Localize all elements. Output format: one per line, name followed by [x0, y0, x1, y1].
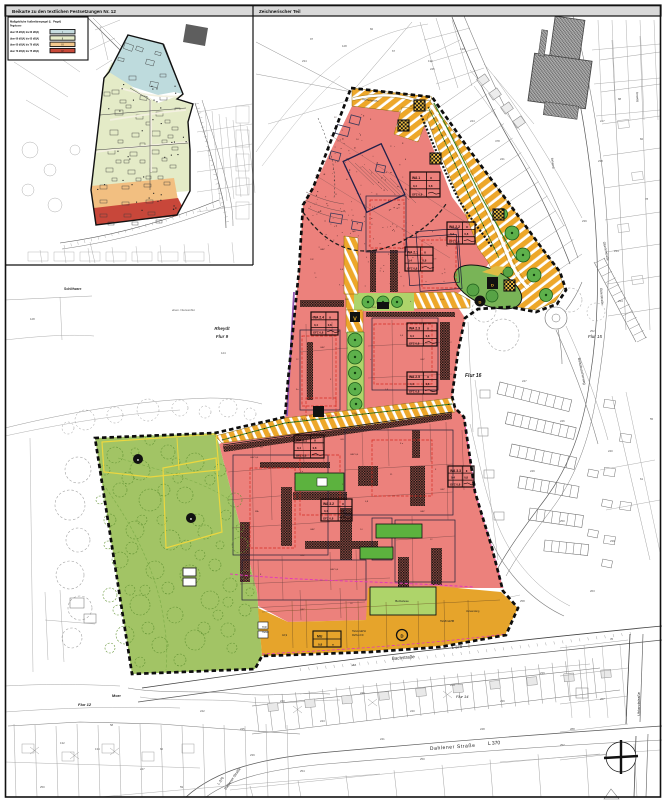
svg-text:0,4: 0,4 — [451, 476, 455, 480]
svg-text:Bolzwiese: Bolzwiese — [395, 599, 409, 603]
svg-text:245: 245 — [430, 67, 435, 71]
svg-text:257: 257 — [560, 743, 565, 747]
svg-text:GFZ 0,8: GFZ 0,8 — [323, 517, 334, 521]
svg-text:über 60 dB(A) bis 65 dB(A): über 60 dB(A) bis 65 dB(A) — [10, 37, 39, 40]
svg-text:Schilfware: Schilfware — [64, 287, 82, 291]
svg-text:WA 1: WA 1 — [412, 176, 420, 180]
svg-text:0,8: 0,8 — [464, 232, 468, 236]
svg-text:0,8: 0,8 — [464, 476, 468, 480]
svg-text:254: 254 — [300, 769, 305, 773]
svg-text:über 70 dB(A) bis 75 dB(A): über 70 dB(A) bis 75 dB(A) — [10, 50, 39, 53]
svg-text:240: 240 — [410, 709, 415, 713]
svg-text:132: 132 — [428, 59, 433, 63]
svg-text:WA 3,4: WA 3,4 — [300, 418, 308, 421]
svg-text:82: 82 — [370, 27, 374, 31]
svg-text:243: 243 — [450, 683, 455, 687]
svg-text:GRZ: GRZ — [300, 555, 305, 557]
svg-text:258: 258 — [520, 599, 525, 603]
svg-text:GRZ 0,4: GRZ 0,4 — [250, 457, 259, 459]
svg-text:II: II — [424, 251, 426, 255]
svg-text:II: II — [427, 375, 429, 379]
svg-text:GFZ 0,8: GFZ 0,8 — [412, 193, 423, 197]
svg-text:239: 239 — [250, 753, 255, 757]
svg-text:0,8: 0,8 — [328, 323, 332, 327]
svg-text:238: 238 — [598, 159, 603, 163]
svg-text:II: II — [466, 225, 468, 229]
svg-text:0,8: 0,8 — [313, 446, 317, 450]
svg-text:FEHLA FD: FEHLA FD — [352, 634, 364, 637]
svg-text:247: 247 — [600, 119, 605, 123]
svg-text:42,9: 42,9 — [282, 633, 288, 637]
svg-text:82: 82 — [640, 137, 644, 141]
svg-text:0,4: 0,4 — [410, 334, 414, 338]
svg-text:WA 2.1: WA 2.1 — [407, 251, 418, 255]
svg-text:0,8: 0,8 — [426, 334, 430, 338]
svg-text:78: 78 — [645, 197, 649, 201]
svg-text:288: 288 — [570, 727, 575, 731]
svg-text:249: 249 — [530, 469, 535, 473]
svg-text:GFZ 0,8: GFZ 0,8 — [409, 390, 420, 394]
svg-text:H,W: H,W — [262, 626, 267, 629]
svg-text:248: 248 — [480, 727, 485, 731]
svg-text:128: 128 — [30, 317, 35, 321]
svg-text:Beikarte zu den textlichen Fes: Beikarte zu den textlichen Festsetzungen… — [12, 9, 116, 14]
svg-text:134: 134 — [95, 747, 100, 751]
svg-text:über 55 dB(A) bis 60 dB(A): über 55 dB(A) bis 60 dB(A) — [10, 31, 39, 34]
svg-text:247: 247 — [522, 379, 527, 383]
svg-text:240: 240 — [608, 449, 613, 453]
svg-text:55: 55 — [650, 417, 654, 421]
svg-text:0,4: 0,4 — [324, 509, 328, 513]
svg-text:TEILB GEHB: TEILB GEHB — [440, 620, 454, 623]
svg-text:239: 239 — [610, 539, 615, 543]
svg-text:WA 2.2: WA 2.2 — [449, 225, 460, 229]
svg-text:252: 252 — [590, 329, 595, 333]
svg-text:WA: WA — [255, 510, 259, 513]
svg-text:GFZ 0,8: GFZ 0,8 — [450, 483, 461, 487]
svg-text:D: D — [400, 634, 403, 639]
svg-text:II: II — [329, 315, 331, 319]
svg-text:GFZ 0,8: GFZ 0,8 — [449, 240, 460, 244]
svg-text:GRZ: GRZ — [300, 609, 305, 611]
svg-text:II: II — [342, 502, 344, 506]
svg-text:247: 247 — [140, 767, 145, 771]
svg-text:245: 245 — [240, 727, 245, 731]
svg-text:58: 58 — [110, 723, 114, 727]
svg-text:GRZ 0,4: GRZ 0,4 — [330, 569, 339, 571]
svg-text:V: V — [353, 317, 357, 323]
svg-text:234: 234 — [614, 249, 619, 253]
svg-text:GRZ: GRZ — [420, 511, 425, 513]
svg-text:II: II — [314, 438, 316, 442]
svg-text:124: 124 — [221, 351, 226, 355]
svg-text:D: D — [491, 283, 494, 288]
svg-text:GRZ: GRZ — [320, 249, 325, 251]
svg-text:Flur 16: Flur 16 — [465, 373, 482, 379]
svg-text:97: 97 — [310, 37, 314, 41]
svg-text:243: 243 — [320, 719, 325, 723]
svg-text:WA 3.1: WA 3.1 — [296, 438, 307, 442]
svg-text:241: 241 — [380, 737, 385, 741]
svg-text:Flur 15: Flur 15 — [588, 334, 603, 339]
svg-text:478: 478 — [495, 139, 500, 143]
svg-text:GRZ: GRZ — [420, 359, 425, 361]
svg-text:59: 59 — [180, 785, 184, 789]
svg-text:WA 2.4: WA 2.4 — [313, 315, 324, 319]
svg-text:246: 246 — [360, 691, 365, 695]
svg-text:242: 242 — [200, 709, 205, 713]
svg-text:250: 250 — [560, 519, 565, 523]
svg-text:88: 88 — [618, 97, 622, 101]
svg-text:Flur 12: Flur 12 — [78, 702, 92, 707]
svg-text:GFZ 0,8: GFZ 0,8 — [407, 267, 418, 271]
svg-text:GFZ 0,8: GFZ 0,8 — [296, 454, 307, 458]
svg-text:WA 3.2: WA 3.2 — [323, 502, 334, 506]
svg-text:0,8: 0,8 — [426, 382, 430, 386]
svg-text:ata: ata — [352, 663, 357, 667]
svg-text:WA 2.3: WA 2.3 — [409, 326, 420, 330]
svg-text:ehem. Niersumflut: ehem. Niersumflut — [172, 308, 195, 312]
svg-text:über 65 dB(A) bis 70 dB(A): über 65 dB(A) bis 70 dB(A) — [10, 44, 39, 47]
svg-text:II: II — [427, 326, 429, 330]
svg-text:Pegelzone: Pegelzone — [10, 26, 22, 28]
svg-text:239: 239 — [582, 219, 587, 223]
svg-text:GRZ: GRZ — [320, 347, 325, 349]
svg-text:o: o — [332, 643, 334, 647]
svg-text:130: 130 — [460, 47, 465, 51]
svg-text:0,4: 0,4 — [410, 382, 414, 386]
svg-text:0,8: 0,8 — [422, 258, 426, 262]
svg-text:GFZ 0,8: GFZ 0,8 — [409, 342, 420, 346]
svg-text:244: 244 — [470, 119, 475, 123]
svg-text:239: 239 — [540, 671, 545, 675]
svg-text:263: 263 — [590, 589, 595, 593]
svg-text:61: 61 — [640, 477, 644, 481]
svg-text:239: 239 — [500, 699, 505, 703]
svg-text:III: III — [61, 44, 63, 47]
svg-text:Maßgebliche Außenlärmpegel (L: Maßgebliche Außenlärmpegel (L Pegel) — [10, 20, 61, 24]
svg-text:132: 132 — [60, 741, 65, 745]
svg-text:0,8: 0,8 — [429, 184, 433, 188]
svg-text:D: D — [479, 300, 482, 305]
svg-text:GFZ 0,8: GFZ 0,8 — [313, 331, 324, 335]
svg-text:GRZ: GRZ — [430, 129, 435, 131]
svg-text:240: 240 — [280, 699, 285, 703]
svg-text:267: 267 — [600, 697, 605, 701]
svg-text:243a: 243a — [352, 413, 358, 415]
svg-text:60: 60 — [160, 747, 164, 751]
svg-text:241: 241 — [500, 157, 505, 161]
svg-text:II: II — [466, 469, 468, 473]
svg-text:128: 128 — [342, 44, 347, 48]
svg-text:TEILA GEHA: TEILA GEHA — [352, 630, 366, 633]
svg-text:0,4: 0,4 — [408, 258, 412, 262]
svg-text:GRZ 0,4: GRZ 0,4 — [350, 454, 359, 456]
svg-text:0,4: 0,4 — [413, 184, 417, 188]
svg-text:0,8: 0,8 — [340, 509, 344, 513]
svg-text:Rheydt: Rheydt — [214, 326, 230, 331]
svg-text:L 370: L 370 — [488, 740, 501, 747]
svg-text:67: 67 — [392, 49, 396, 53]
svg-text:WA 2.5: WA 2.5 — [409, 375, 420, 379]
svg-text:0,4: 0,4 — [297, 446, 301, 450]
svg-text:0,8: 0,8 — [318, 643, 323, 647]
svg-text:Flur 14: Flur 14 — [456, 694, 469, 699]
svg-text:Flur 9: Flur 9 — [216, 334, 229, 339]
svg-text:IV: IV — [61, 50, 64, 53]
svg-text:MU: MU — [317, 635, 323, 639]
svg-text:WA 3.3: WA 3.3 — [450, 469, 461, 473]
svg-text:Uhlandstraße: Uhlandstraße — [636, 691, 641, 716]
svg-text:Zeichnerischer Teil: Zeichnerischer Teil — [259, 9, 301, 14]
svg-text:35: 35 — [610, 637, 614, 641]
svg-text:II: II — [430, 176, 432, 180]
svg-text:234: 234 — [302, 59, 307, 63]
svg-text:GRZ: GRZ — [310, 529, 315, 531]
svg-text:246: 246 — [560, 419, 565, 423]
svg-text:250: 250 — [40, 785, 45, 789]
svg-text:Morr: Morr — [112, 693, 121, 698]
svg-text:GRZ: GRZ — [440, 489, 445, 491]
svg-text:0,4: 0,4 — [314, 323, 318, 327]
svg-text:254: 254 — [618, 299, 623, 303]
svg-text:TEILA: TEILA — [262, 631, 269, 634]
svg-text:Verwendung: Verwendung — [466, 610, 480, 613]
svg-text:0,4: 0,4 — [450, 232, 454, 236]
svg-text:250: 250 — [420, 757, 425, 761]
